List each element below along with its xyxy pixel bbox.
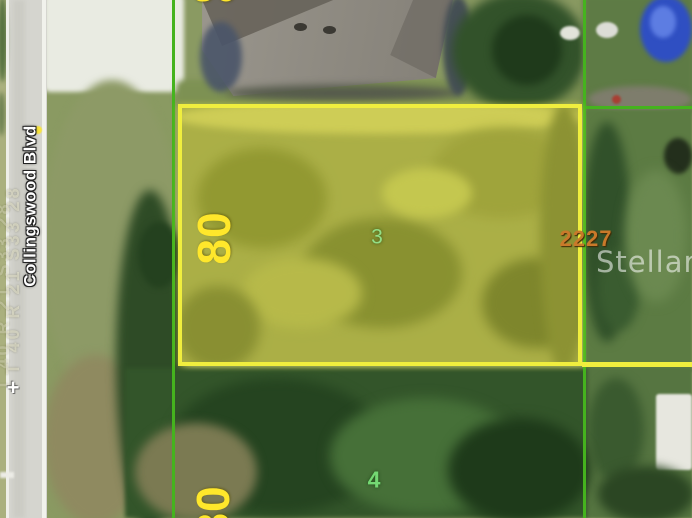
property-line-horizontal-right xyxy=(583,106,692,109)
trees-lot4-dark2 xyxy=(448,418,590,518)
parcel-line-extension xyxy=(582,362,692,367)
parcel-address-label: 2227 xyxy=(560,228,613,250)
roof-vent xyxy=(294,23,307,31)
street-name-label: Collingswood Blvd xyxy=(22,125,39,287)
roof-vent xyxy=(323,26,336,34)
property-line-vertical-right xyxy=(583,0,586,518)
stellar-mls-watermark: Stellar MLS xyxy=(596,248,692,277)
dark-vehicle xyxy=(664,138,692,174)
road-edge-line-right xyxy=(42,0,46,518)
road-white-tick xyxy=(0,472,14,478)
tree-bottom-right xyxy=(598,466,692,518)
pavement-top-left xyxy=(44,0,184,92)
white-object xyxy=(560,26,580,40)
lot3-number-label: 3 xyxy=(371,227,383,248)
lawn-light-patch xyxy=(625,170,687,302)
house-shadow-lower xyxy=(225,85,460,101)
property-line-vertical-left xyxy=(172,0,175,518)
survey-cross-marker: + xyxy=(7,377,20,399)
red-object xyxy=(612,95,621,104)
blue-tarp-highlight xyxy=(650,6,676,38)
lot4-number-label: 4 xyxy=(368,469,381,492)
house-shadow xyxy=(200,22,242,92)
lot3-width-label: 80 xyxy=(191,211,237,264)
section-township-label-ghost: T 40 R 21 S33 28 xyxy=(0,201,12,390)
lot-above-width-label: 80 xyxy=(192,0,239,8)
white-object xyxy=(596,22,618,38)
lot4-width-label: 80 xyxy=(190,485,236,518)
white-shed xyxy=(656,394,692,470)
trees-right-dark xyxy=(492,15,562,85)
aerial-parcel-map: 80 80 3 2227 Stellar MLS 80 4 Collingswo… xyxy=(0,0,692,518)
